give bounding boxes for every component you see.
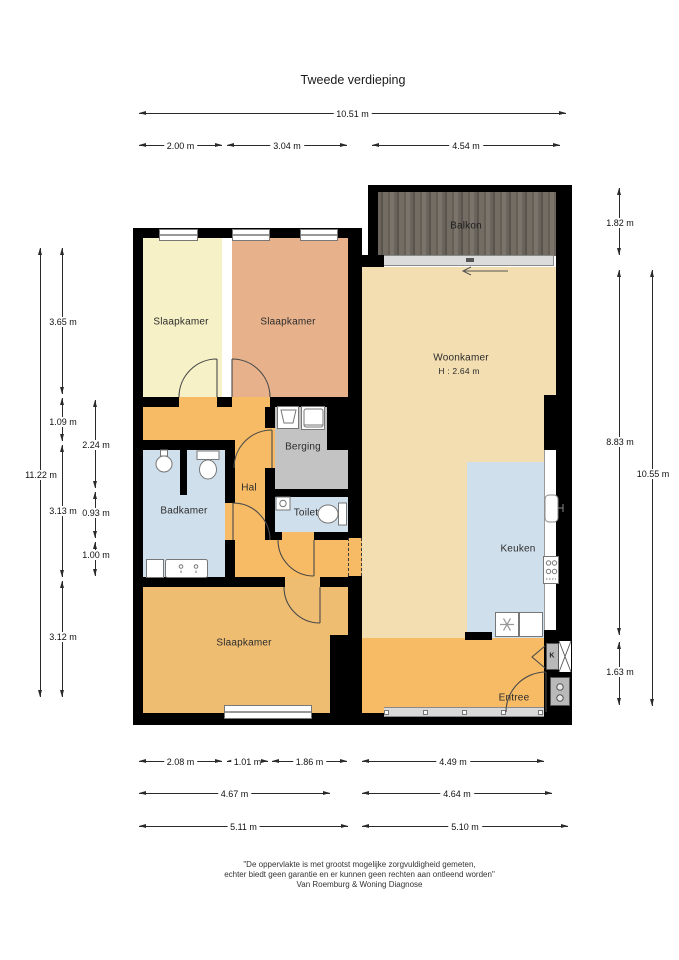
dim-top-b: 3.04 m bbox=[227, 145, 347, 146]
label-balkon: Balkon bbox=[450, 221, 482, 232]
door-arcs bbox=[179, 359, 546, 712]
dim-bottom-r3b: 5.10 m bbox=[362, 826, 568, 827]
dim-right-b: 8.83 m bbox=[619, 270, 620, 635]
label-badkamer: Badkamer bbox=[160, 506, 207, 517]
label-berging: Berging bbox=[285, 442, 321, 453]
berging-fixture-details bbox=[281, 409, 323, 427]
label-slaapkamer-3: Slaapkamer bbox=[216, 638, 271, 649]
dim-bottom-r2b: 4.64 m bbox=[362, 793, 552, 794]
shower-icon bbox=[147, 560, 164, 578]
dim-left-b: 1.09 m bbox=[62, 398, 63, 441]
kitchen-sink-icon bbox=[545, 495, 558, 522]
label-slaapkamer-1: Slaapkamer bbox=[153, 317, 208, 328]
shaft-cross-icon bbox=[559, 641, 571, 672]
laundry-basin-icon bbox=[281, 410, 296, 423]
kitchen-fixtures bbox=[544, 495, 564, 584]
dim-left-total: 11.22 m bbox=[40, 248, 41, 697]
dim-bottom-r1a: 2.08 m bbox=[139, 761, 222, 762]
label-woonkamer: Woonkamer bbox=[433, 353, 489, 364]
label-toilet: Toilet bbox=[294, 508, 319, 519]
disclaimer-line-3: Van Roemburg & Woning Diagnose bbox=[40, 880, 679, 890]
meter-icons bbox=[557, 684, 563, 701]
label-entree: Entree bbox=[499, 693, 530, 704]
floorplan-page: Tweede verdieping bbox=[0, 0, 679, 960]
dim-left-c: 3.13 m bbox=[62, 445, 63, 577]
washstand-icon bbox=[161, 450, 168, 456]
dim-bottom-r1c: 1.86 m bbox=[272, 761, 347, 762]
label-keuken: Keuken bbox=[500, 544, 535, 555]
disclaimer-line-1: "De oppervlakte is met grootst mogelijke… bbox=[40, 860, 679, 870]
dim-left-a: 3.65 m bbox=[62, 248, 63, 394]
washing-machine-icon bbox=[304, 409, 323, 427]
bathtub-icon bbox=[166, 560, 208, 578]
dim-top-c: 4.54 m bbox=[372, 145, 560, 146]
label-woonkamer-height: H : 2.64 m bbox=[438, 366, 479, 376]
toilet-bowl-icon bbox=[318, 505, 338, 523]
dim-bottom-r1d: 4.49 m bbox=[362, 761, 544, 762]
label-slaapkamer-2: Slaapkamer bbox=[260, 317, 315, 328]
bifold-door-k bbox=[532, 646, 545, 668]
disclaimer-line-2: echter biedt geen garantie en er kunnen … bbox=[40, 870, 679, 880]
dim-right-a: 1.82 m bbox=[619, 188, 620, 255]
dim-left-inner-c: 1.00 m bbox=[95, 542, 96, 576]
label-kast-k: K bbox=[549, 653, 554, 660]
dim-top-total: 10.51 m bbox=[139, 113, 566, 114]
slider-arrow-icon bbox=[463, 258, 508, 275]
dim-bottom-r1b: 1.01 m bbox=[227, 761, 268, 762]
dim-right-c: 1.63 m bbox=[619, 642, 620, 705]
dim-right-total: 10.55 m bbox=[652, 270, 653, 706]
disclaimer: "De oppervlakte is met grootst mogelijke… bbox=[40, 860, 679, 890]
dim-left-inner-a: 2.24 m bbox=[95, 400, 96, 488]
toilet-bowl-icon bbox=[200, 460, 217, 479]
dim-bottom-r2a: 4.67 m bbox=[139, 793, 330, 794]
dim-left-inner-b: 0.93 m bbox=[95, 492, 96, 538]
toilet-tank bbox=[197, 451, 219, 460]
dim-left-d: 3.12 m bbox=[62, 581, 63, 697]
sink-icon bbox=[156, 456, 172, 472]
snowflake-icon bbox=[500, 618, 514, 630]
dim-top-a: 2.00 m bbox=[139, 145, 222, 146]
dim-bottom-r3a: 5.11 m bbox=[139, 826, 348, 827]
toilet-tank bbox=[339, 503, 347, 525]
label-hal: Hal bbox=[241, 483, 257, 494]
